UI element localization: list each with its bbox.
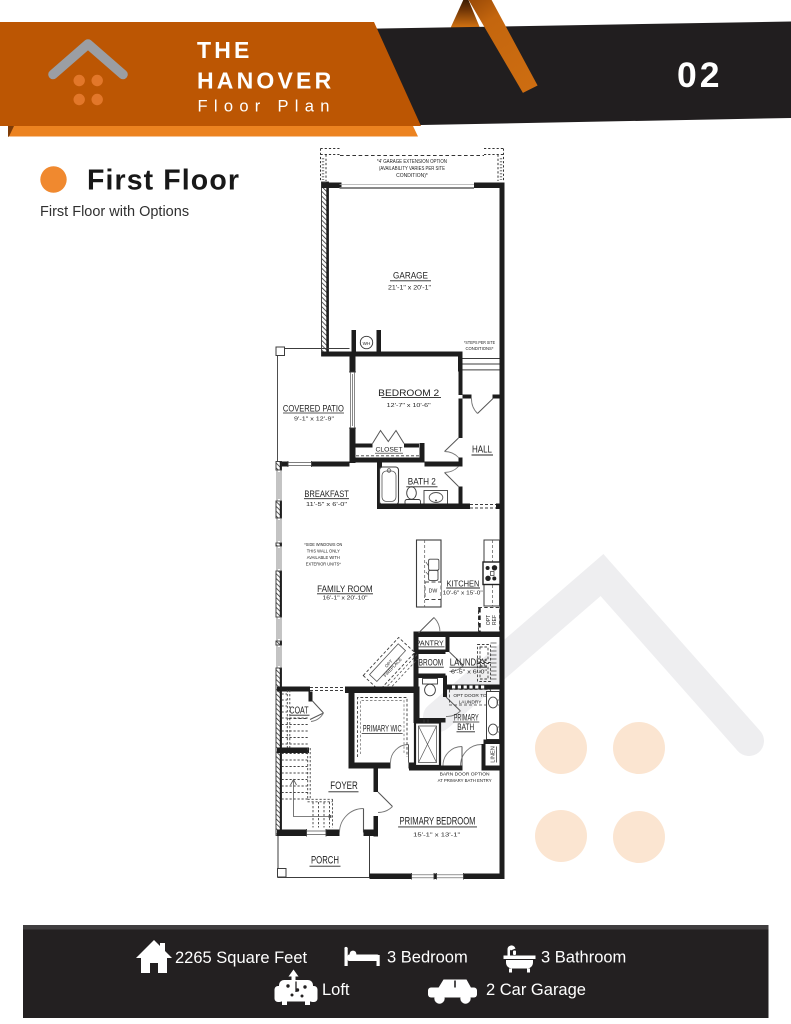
svg-text:BEDROOM 2: BEDROOM 2 xyxy=(378,388,439,398)
svg-text:11'-5" x 6'-0": 11'-5" x 6'-0" xyxy=(306,502,347,508)
svg-text:*SIDE WINDOWS ON: *SIDE WINDOWS ON xyxy=(304,542,342,548)
svg-text:*4' GARAGE EXTENSION OPTION: *4' GARAGE EXTENSION OPTION xyxy=(377,159,447,165)
svg-text:First Floor with Options: First Floor with Options xyxy=(40,204,189,220)
svg-text:PRIMARY: PRIMARY xyxy=(454,712,479,722)
svg-text:Loft: Loft xyxy=(322,981,350,999)
svg-text:10'-6" x 15'-0": 10'-6" x 15'-0" xyxy=(443,590,483,596)
svg-text:CLOSET: CLOSET xyxy=(376,447,403,454)
svg-text:(AVAILABILITY VARIES PER SITE: (AVAILABILITY VARIES PER SITE xyxy=(379,166,446,172)
svg-text:AVAILABLE WITH: AVAILABLE WITH xyxy=(307,555,340,561)
svg-text:21'-1" x 20'-1": 21'-1" x 20'-1" xyxy=(388,286,431,292)
svg-text:THE: THE xyxy=(197,37,253,63)
svg-text:PANTRY: PANTRY xyxy=(416,638,444,647)
svg-text:DW: DW xyxy=(429,588,438,594)
svg-text:First Floor: First Floor xyxy=(87,165,240,197)
svg-text:6'-5" x 6'-0": 6'-5" x 6'-0" xyxy=(451,669,487,675)
svg-text:02: 02 xyxy=(677,55,723,95)
svg-text:AT PRIMARY BATH ENTRY: AT PRIMARY BATH ENTRY xyxy=(438,778,493,784)
svg-text:COVERED PATIO: COVERED PATIO xyxy=(283,403,344,413)
svg-text:HANOVER: HANOVER xyxy=(197,68,334,94)
svg-text:HALL: HALL xyxy=(472,445,492,456)
svg-text:OPT DOOR TO: OPT DOOR TO xyxy=(453,693,487,699)
svg-text:FOYER: FOYER xyxy=(330,780,358,792)
svg-text:CONDITIONS*: CONDITIONS* xyxy=(466,346,494,351)
svg-text:REF: REF xyxy=(492,615,498,625)
svg-text:BATH: BATH xyxy=(457,722,474,732)
svg-text:2 Car Garage: 2 Car Garage xyxy=(486,981,586,999)
svg-text:BREAKFAST: BREAKFAST xyxy=(304,489,349,499)
svg-text:PRIMARY WIC: PRIMARY WIC xyxy=(363,724,402,734)
svg-text:WH: WH xyxy=(363,341,371,346)
svg-text:15'-1" x 13'-1": 15'-1" x 13'-1" xyxy=(413,832,460,838)
svg-text:BARN DOOR OPTION: BARN DOOR OPTION xyxy=(440,772,491,778)
svg-text:THIS WALL ONLY: THIS WALL ONLY xyxy=(307,549,341,555)
svg-text:LAUNDRY: LAUNDRY xyxy=(459,700,483,706)
svg-text:EXTERIOR UNITS*: EXTERIOR UNITS* xyxy=(306,562,341,568)
svg-text:*STEPS PER SITE: *STEPS PER SITE xyxy=(464,340,495,345)
svg-text:PRIMARY BEDROOM: PRIMARY BEDROOM xyxy=(400,815,476,827)
svg-text:LINEN: LINEN xyxy=(491,746,497,762)
svg-text:12'-7" x 10'-6": 12'-7" x 10'-6" xyxy=(387,403,431,409)
svg-text:BATH 2: BATH 2 xyxy=(408,477,436,487)
svg-text:CONDITION)*: CONDITION)* xyxy=(396,173,428,179)
svg-text:GARAGE: GARAGE xyxy=(393,271,428,282)
svg-text:3 Bedroom: 3 Bedroom xyxy=(387,949,468,967)
svg-text:16'-1" x 20'-10": 16'-1" x 20'-10" xyxy=(323,596,368,602)
svg-text:Floor Plan: Floor Plan xyxy=(198,98,336,116)
svg-text:BROOM: BROOM xyxy=(419,656,444,667)
svg-text:9'-1" x 12'-9": 9'-1" x 12'-9" xyxy=(294,417,334,423)
svg-text:3 Bathroom: 3 Bathroom xyxy=(541,949,626,967)
svg-text:PORCH: PORCH xyxy=(311,855,339,867)
svg-text:FAMILY ROOM: FAMILY ROOM xyxy=(317,584,373,594)
svg-text:KITCHEN: KITCHEN xyxy=(447,579,480,588)
svg-text:COAT: COAT xyxy=(290,705,309,716)
svg-text:2265 Square Feet: 2265 Square Feet xyxy=(175,949,308,967)
